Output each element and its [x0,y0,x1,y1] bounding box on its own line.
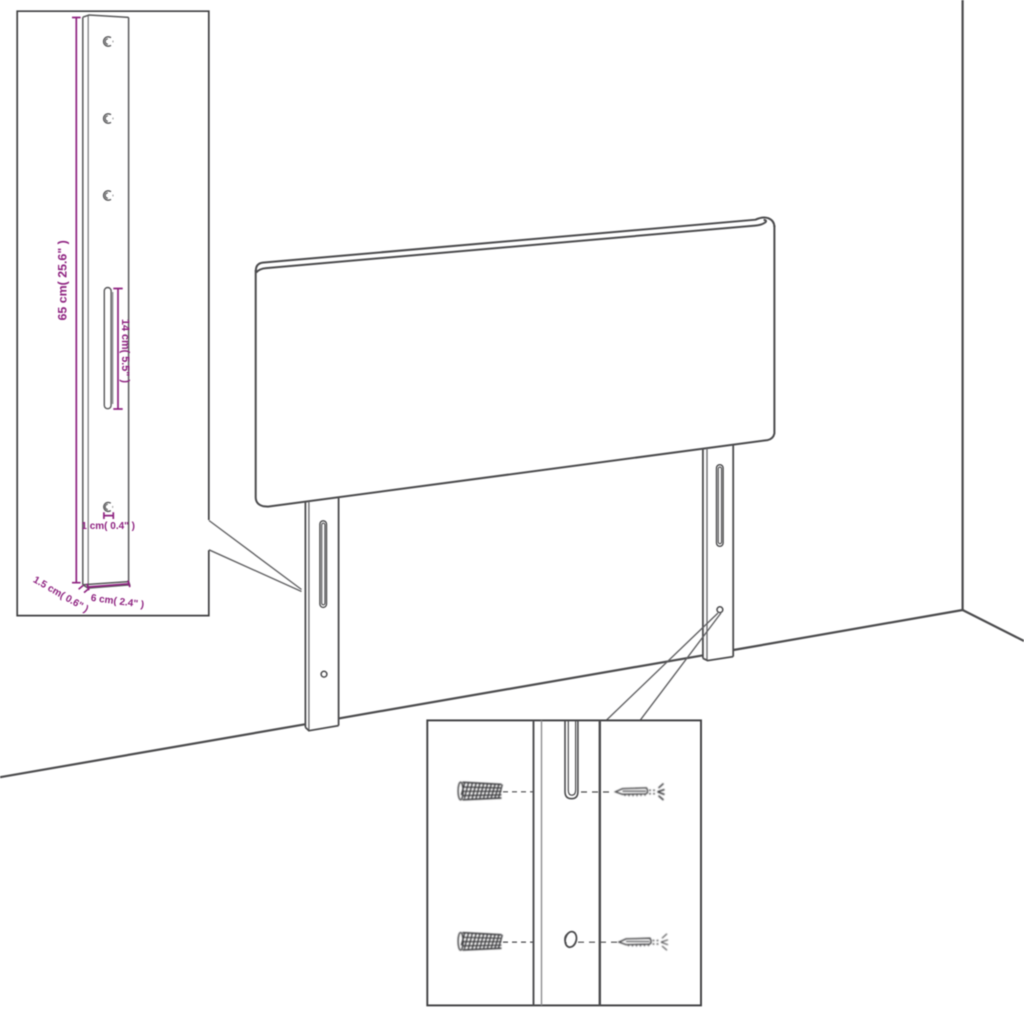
svg-text:14 cm( 5.5" ): 14 cm( 5.5" ) [119,319,131,383]
svg-text:1 cm( 0.4" ): 1 cm( 0.4" ) [81,521,135,532]
svg-text:65 cm( 25.6" ): 65 cm( 25.6" ) [56,240,70,320]
